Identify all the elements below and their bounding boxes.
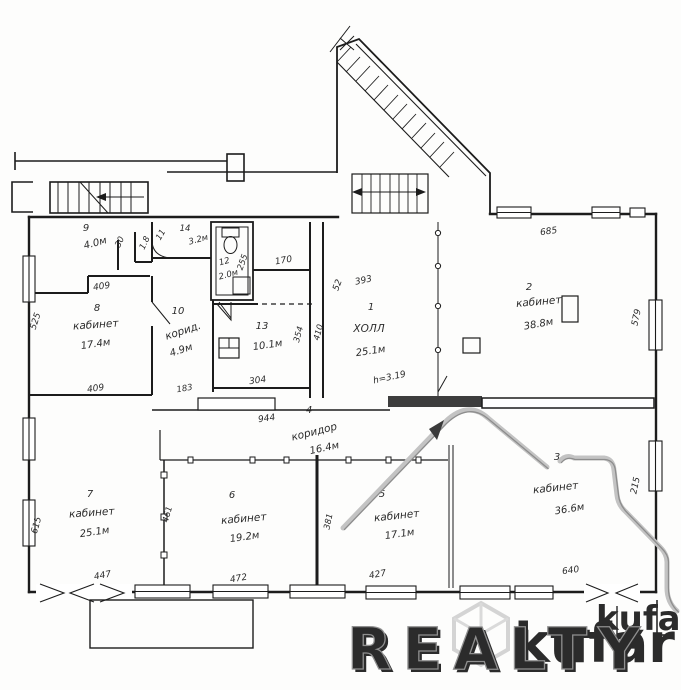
dim-vestibule-170: 170 — [274, 255, 293, 268]
dim-hall-52: 52 — [331, 278, 344, 292]
dim-447: 447 — [93, 570, 112, 583]
room-8-number: 8 — [94, 303, 100, 314]
floor-plan-drawing: 9 4.0м 30 11 1.8 14 3.2м 12 2.0м 255 170… — [0, 0, 681, 690]
room-8-name: кабинет — [73, 317, 120, 332]
dim-472: 472 — [229, 573, 248, 586]
dim-door-30: 30 — [113, 235, 127, 249]
room-1-name: ХОЛЛ — [352, 323, 384, 335]
toilet-fixtures — [211, 222, 578, 358]
room-2-number: 2 — [526, 282, 532, 293]
room-1-number: 1 — [368, 302, 374, 313]
room-13-number: 13 — [256, 321, 269, 332]
room-6-number: 6 — [229, 490, 235, 501]
room-9-number: 9 — [83, 223, 89, 234]
room-11-area: 1.8 — [138, 234, 153, 251]
room-10-number: 10 — [172, 306, 185, 317]
room-1-area: 25.1м — [355, 344, 387, 359]
floor-plan-scan: 9 4.0м 30 11 1.8 14 3.2м 12 2.0м 255 170… — [0, 0, 681, 690]
dim-215: 215 — [629, 476, 642, 495]
dim-381: 381 — [322, 513, 335, 531]
room-14-area: 3.2м — [188, 233, 210, 248]
room-4-number: 4 — [306, 405, 312, 416]
room-7-number: 7 — [87, 489, 94, 500]
room-10-area: 4.9м — [168, 342, 194, 360]
room-3-name: кабинет — [532, 480, 579, 497]
dim-685: 685 — [540, 226, 559, 238]
porch — [90, 600, 253, 648]
room-8-area: 17.4м — [80, 337, 112, 352]
stairs-diagonal — [330, 26, 490, 215]
dim-461: 461 — [161, 505, 175, 523]
room-4-area: 16.4м — [309, 440, 341, 457]
dim-354: 354 — [292, 325, 306, 343]
room-9-area: 4.0м — [83, 235, 109, 252]
dim-409-bottom: 409 — [87, 383, 106, 395]
room-7-area: 25.1м — [79, 525, 111, 540]
dim-hall-393: 393 — [354, 274, 373, 287]
room-13-area: 10.1м — [252, 338, 284, 353]
room-6-name: кабинет — [221, 511, 268, 527]
dim-525-left: 525 — [29, 311, 44, 331]
realty-watermark-text: REALTY — [347, 615, 651, 683]
room-3-area: 36.6м — [554, 502, 586, 518]
dim-640: 640 — [562, 565, 581, 577]
room-2-name: кабинет — [516, 294, 563, 310]
room-6-area: 19.2м — [229, 530, 261, 545]
room-5-name: кабинет — [373, 508, 420, 525]
dim-183: 183 — [176, 383, 194, 396]
room-2-area: 38.8м — [523, 316, 555, 332]
dim-304: 304 — [249, 375, 268, 387]
room-11-number: 11 — [154, 228, 168, 242]
realty-watermark: REALTY REALTY — [347, 615, 654, 686]
room-7-name: кабинет — [69, 505, 116, 520]
stairs-upper-left — [12, 152, 337, 213]
room-5-area: 17.1м — [384, 527, 416, 542]
dim-427: 427 — [368, 569, 387, 582]
room-4-name: коридор — [290, 421, 338, 444]
room-12-number: 12 — [218, 256, 231, 268]
hall-partition — [161, 222, 447, 558]
dim-944: 944 — [258, 413, 277, 425]
room-14-number: 14 — [180, 224, 191, 234]
room-12-area: 2.0м — [218, 268, 240, 283]
dim-579: 579 — [630, 308, 643, 327]
dim-409-top: 409 — [93, 281, 112, 293]
ceiling-height-note: h=3.19 — [372, 370, 407, 387]
